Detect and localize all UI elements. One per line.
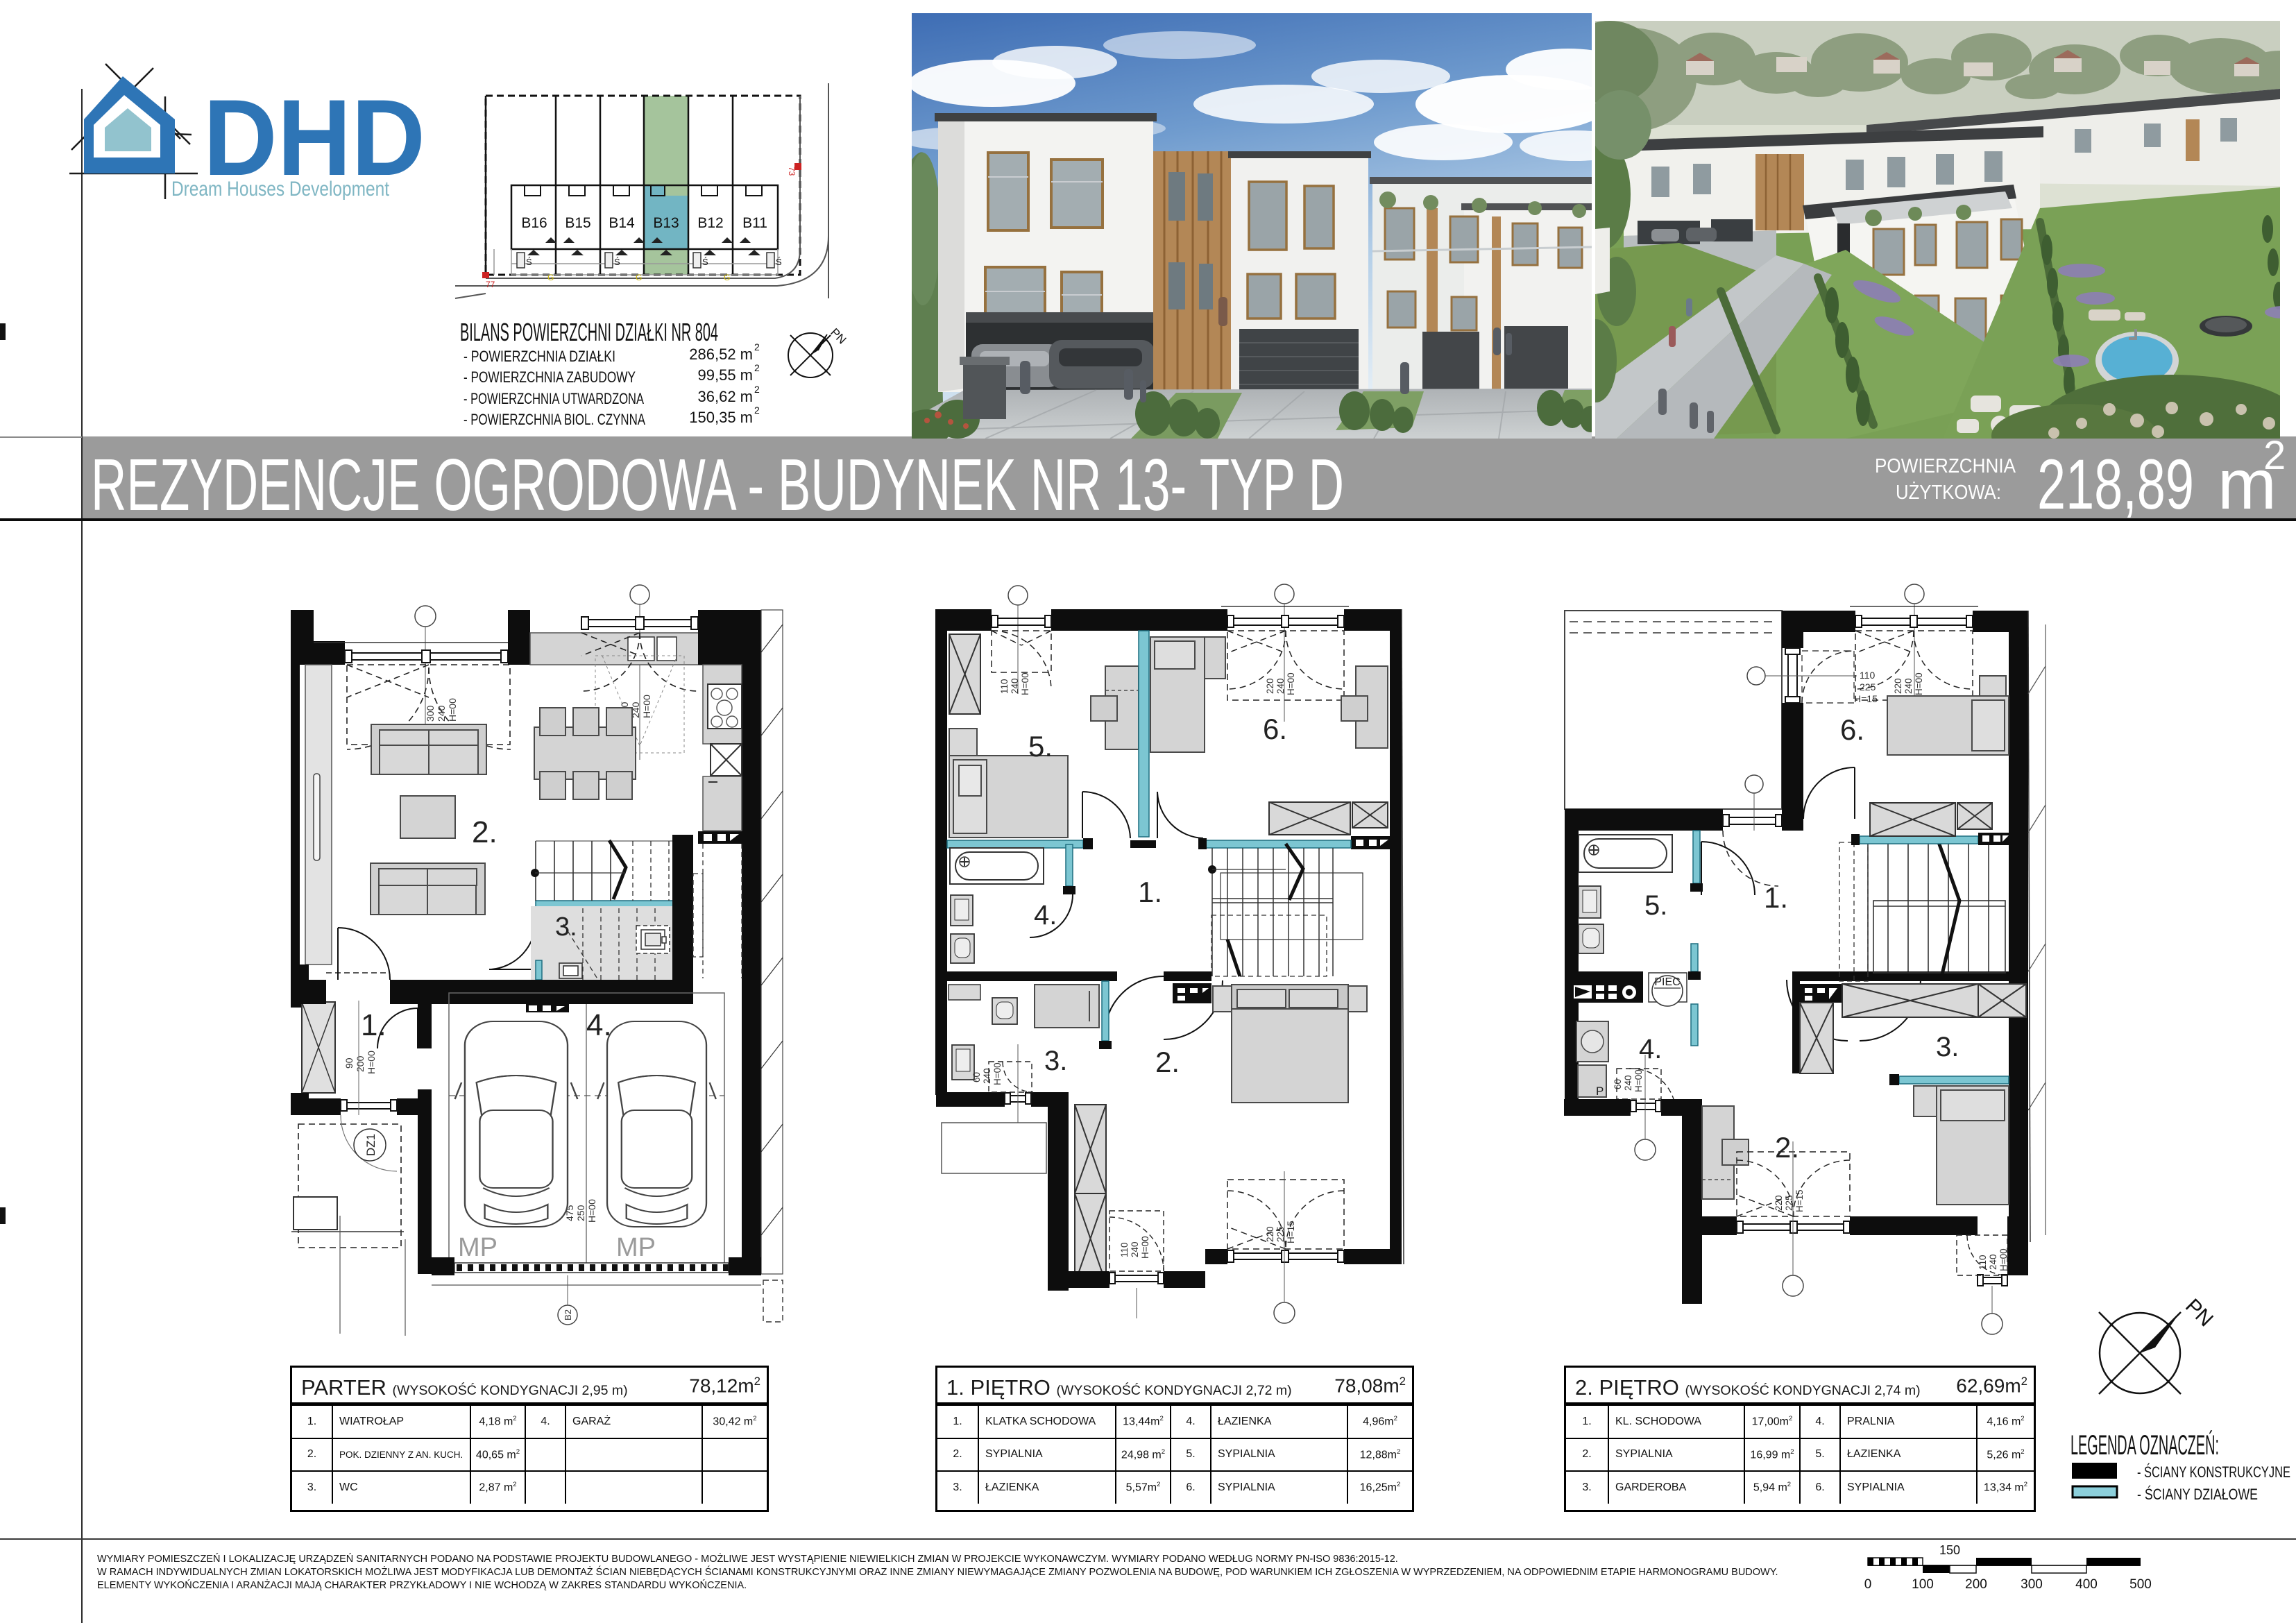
svg-text:2: 2 [754,384,760,395]
svg-text:0: 0 [1864,1577,1872,1592]
svg-text:Ś: Ś [526,257,532,267]
svg-text:220: 220 [1265,1226,1275,1242]
svg-text:H=00: H=00 [1998,1248,2009,1271]
svg-text:MP: MP [458,1233,498,1262]
svg-text:H=00: H=00 [586,1199,597,1223]
svg-text:90: 90 [343,1057,355,1069]
svg-text:G: G [724,273,730,282]
svg-text:99,55 m: 99,55 m [698,366,754,384]
svg-text:Ś: Ś [776,257,782,267]
svg-text:G: G [547,273,554,282]
svg-text:500: 500 [2129,1577,2152,1592]
svg-text:240: 240 [436,705,447,722]
svg-text:240: 240 [1010,678,1020,694]
svg-text:H=00: H=00 [641,695,652,718]
svg-text:60: 60 [971,1072,982,1082]
svg-text:225: 225 [1860,681,1876,692]
svg-text:G: G [636,273,642,282]
svg-text:- POWIERZCHNIA BIOL. CZYNNA: - POWIERZCHNIA BIOL. CZYNNA [464,411,645,428]
svg-text:6.: 6. [1263,713,1287,745]
svg-text:240: 240 [982,1068,992,1084]
svg-text:77: 77 [486,280,495,289]
svg-text:DZ1: DZ1 [364,1134,377,1156]
svg-text:240: 240 [1275,678,1286,694]
svg-text:H=00: H=00 [1633,1069,1644,1092]
svg-text:B2: B2 [563,1309,573,1320]
svg-text:4.: 4. [1034,900,1057,931]
svg-text:B11: B11 [742,215,767,231]
svg-text:PIEC: PIEC [1654,976,1680,988]
svg-text:220: 220 [1774,1195,1784,1211]
svg-text:100: 100 [1912,1577,1934,1592]
svg-text:200: 200 [355,1055,366,1072]
svg-text:6.: 6. [1840,713,1864,746]
svg-text:110: 110 [1860,670,1876,681]
svg-text:H=00: H=00 [1286,672,1296,695]
svg-text:400: 400 [2075,1577,2098,1592]
svg-text:- POWIERZCHNIA UTWARDZONA: - POWIERZCHNIA UTWARDZONA [464,390,644,407]
svg-text:2.: 2. [1155,1046,1180,1078]
svg-text:2: 2 [754,362,760,373]
svg-text:PN: PN [828,325,849,346]
svg-text:250: 250 [575,1205,586,1221]
svg-text:3.: 3. [555,912,577,942]
svg-text:H=00: H=00 [447,698,458,722]
svg-text:H=00: H=00 [1020,672,1030,695]
svg-text:240: 240 [1623,1075,1633,1091]
svg-text:110: 110 [1978,1255,1988,1270]
svg-text:300: 300 [425,705,436,722]
svg-text:1.: 1. [1138,876,1162,908]
svg-text:4.: 4. [1639,1034,1662,1064]
svg-text:2.: 2. [472,815,498,849]
svg-text:MP: MP [616,1233,656,1262]
svg-text:110: 110 [999,679,1010,694]
svg-text:240: 240 [1988,1254,1998,1270]
svg-text:B16: B16 [521,215,547,231]
svg-text:73: 73 [787,167,797,176]
svg-text:240: 240 [1903,678,1914,694]
svg-text:2: 2 [754,405,760,416]
svg-text:H=15: H=15 [1794,1189,1805,1212]
svg-text:H=00: H=00 [992,1062,1003,1085]
svg-text:1.: 1. [361,1008,386,1042]
svg-text:H=15: H=15 [1286,1221,1296,1243]
svg-text:B12: B12 [697,215,723,231]
svg-text:3.: 3. [1936,1032,1959,1062]
svg-text:5.: 5. [1644,890,1667,921]
svg-text:110: 110 [1119,1242,1130,1257]
svg-text:240: 240 [1130,1241,1140,1257]
svg-text:220: 220 [1265,678,1275,694]
svg-text:5.: 5. [1028,730,1053,763]
svg-text:3.: 3. [1044,1046,1067,1076]
svg-text:200: 200 [1965,1577,1987,1592]
svg-text:36,62 m: 36,62 m [698,388,754,405]
svg-text:150,35 m: 150,35 m [689,409,753,426]
svg-text:220: 220 [1893,678,1903,694]
svg-text:B14: B14 [609,215,635,231]
svg-text:P: P [1596,1085,1604,1098]
svg-text:B13: B13 [653,215,679,231]
svg-text:300: 300 [2021,1577,2043,1592]
svg-text:- POWIERZCHNIA ZABUDOWY: - POWIERZCHNIA ZABUDOWY [464,368,636,386]
svg-text:H=00: H=00 [1914,672,1924,695]
svg-text:2: 2 [754,341,760,352]
svg-text:2.: 2. [1775,1131,1799,1164]
svg-text:H=00: H=00 [366,1051,377,1074]
svg-text:Ś: Ś [614,257,620,267]
svg-text:- POWIERZCHNIA DZIAŁKI: - POWIERZCHNIA DZIAŁKI [464,348,615,365]
svg-text:286,52 m: 286,52 m [689,346,753,363]
svg-text:H=15: H=15 [1854,693,1878,704]
svg-text:150: 150 [1939,1543,1960,1557]
svg-text:BILANS POWIERZCHNI DZIAŁKI NR: BILANS POWIERZCHNI DZIAŁKI NR 804 [460,318,718,346]
svg-text:PN: PN [2181,1295,2218,1332]
svg-text:60: 60 [1613,1079,1623,1089]
svg-text:Ś: Ś [702,257,708,267]
svg-text:B15: B15 [565,215,590,231]
svg-text:H=00: H=00 [1140,1236,1150,1259]
svg-text:Dream Houses Development: Dream Houses Development [171,178,390,201]
svg-text:1.: 1. [1764,881,1788,914]
